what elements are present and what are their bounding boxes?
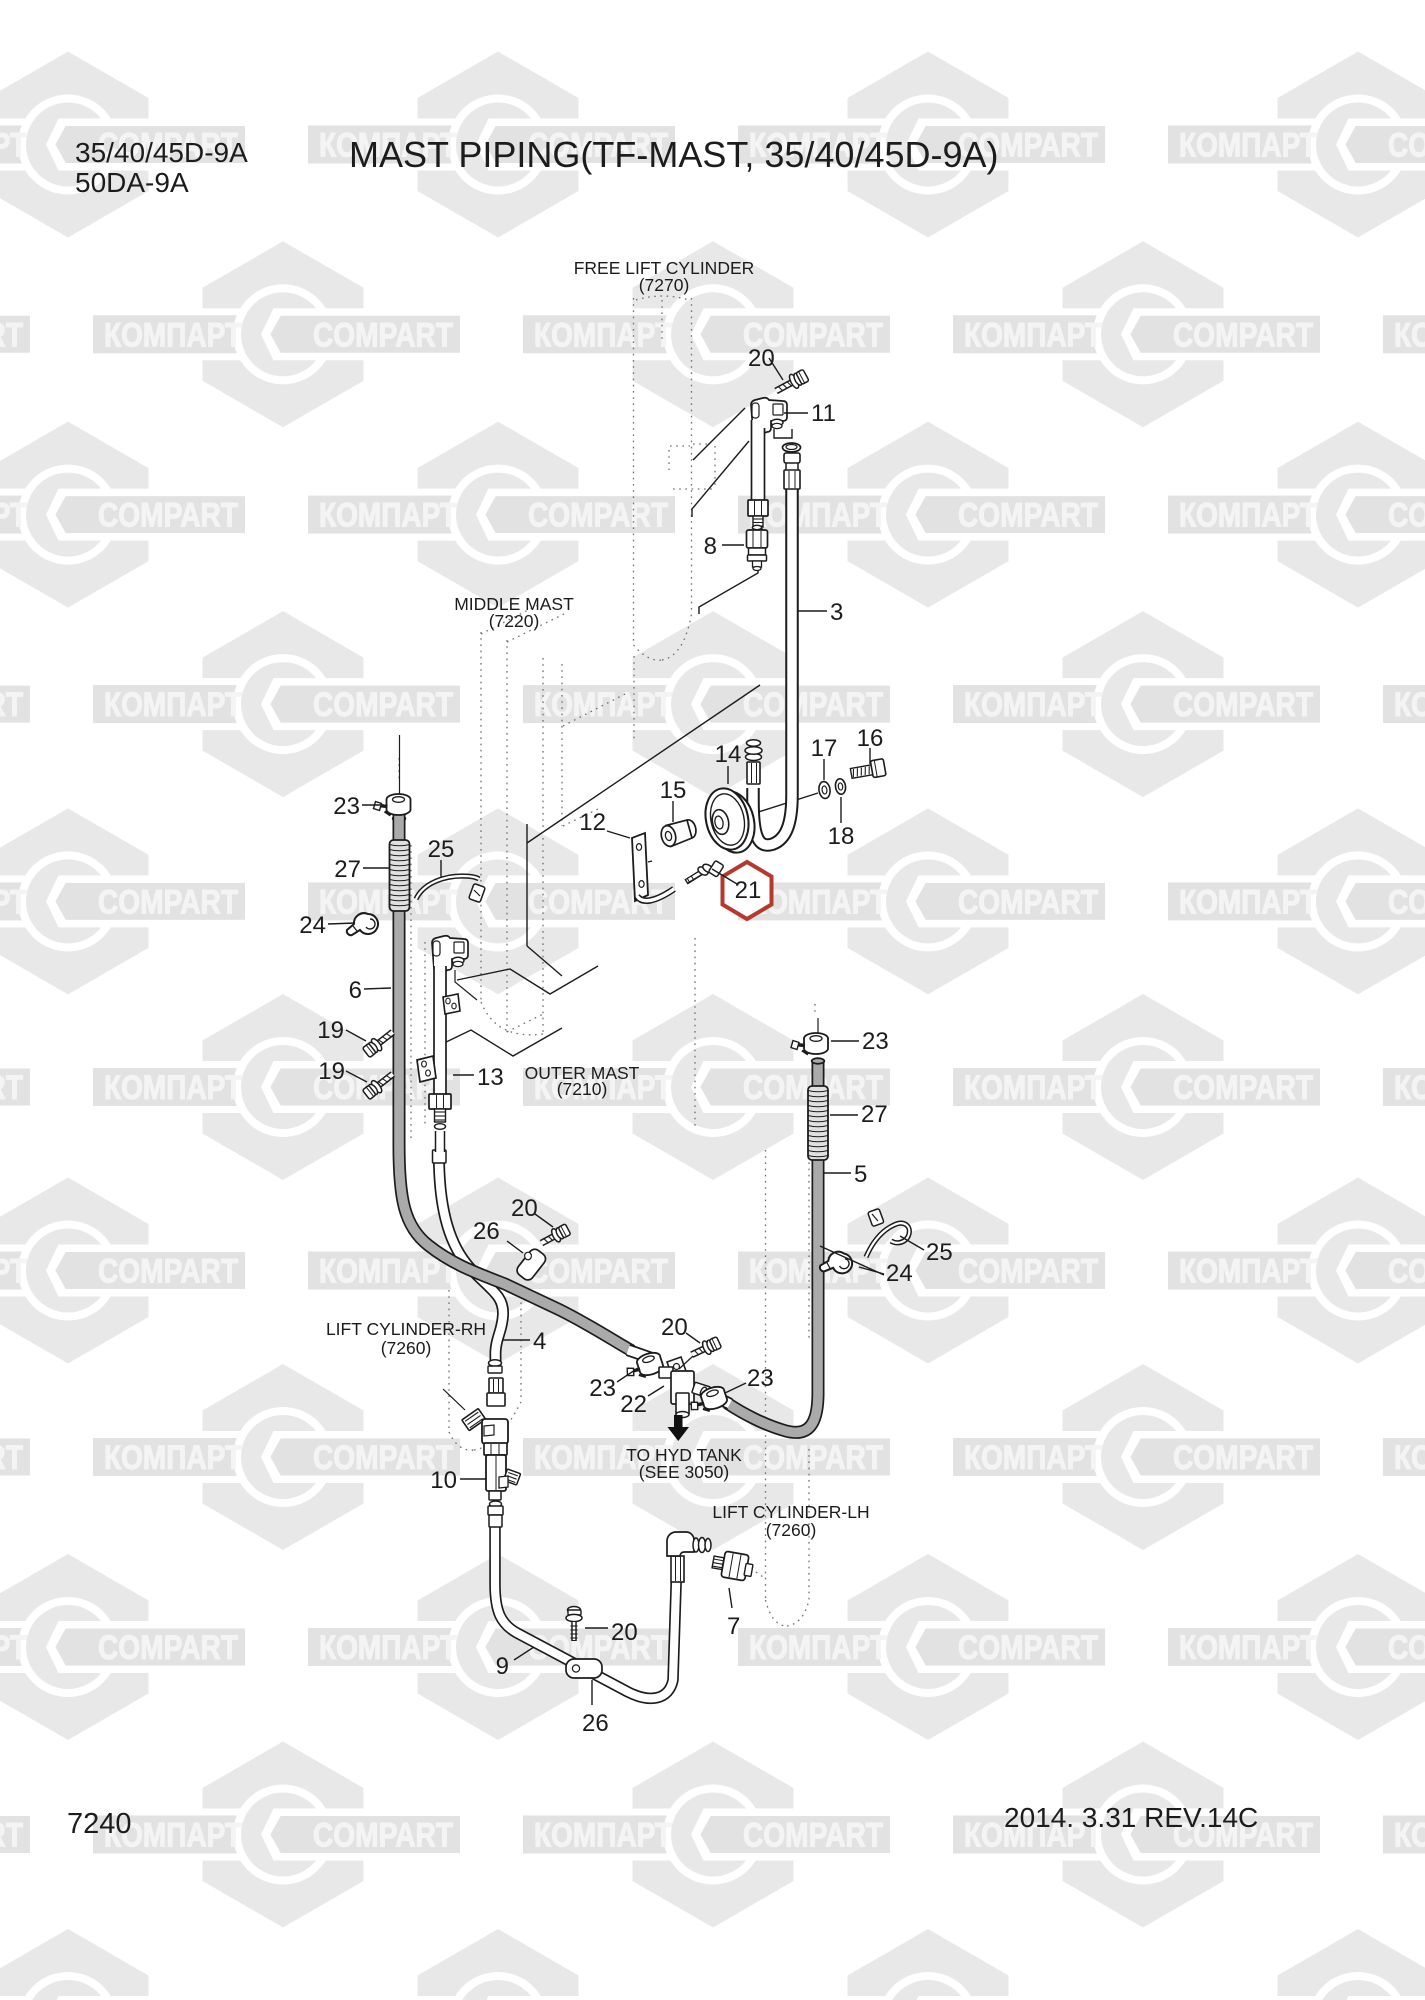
svg-text:15: 15	[660, 777, 687, 804]
svg-text:MAST PIPING(TF-MAST, 35/40/45D: MAST PIPING(TF-MAST, 35/40/45D-9A)	[349, 134, 999, 175]
svg-text:20: 20	[748, 345, 775, 372]
svg-text:19: 19	[317, 1017, 344, 1044]
svg-text:13: 13	[477, 1064, 504, 1091]
svg-text:23: 23	[589, 1375, 616, 1402]
svg-text:(7210): (7210)	[557, 1079, 608, 1099]
svg-text:16: 16	[857, 725, 884, 752]
svg-text:23: 23	[862, 1028, 889, 1055]
svg-text:21: 21	[735, 877, 762, 904]
svg-text:25: 25	[428, 836, 455, 863]
svg-text:24: 24	[299, 912, 326, 939]
svg-text:22: 22	[620, 1391, 647, 1418]
svg-text:23: 23	[333, 793, 360, 820]
svg-text:19: 19	[318, 1058, 345, 1085]
svg-text:23: 23	[747, 1365, 774, 1392]
svg-text:26: 26	[473, 1218, 500, 1245]
svg-text:50DA-9A: 50DA-9A	[75, 167, 189, 198]
svg-text:6: 6	[349, 977, 362, 1004]
svg-text:11: 11	[811, 400, 836, 427]
svg-text:(7260): (7260)	[766, 1520, 817, 1540]
svg-text:(7220): (7220)	[489, 611, 540, 631]
svg-text:20: 20	[511, 1195, 538, 1222]
svg-text:10: 10	[430, 1467, 457, 1494]
svg-text:(7260): (7260)	[381, 1338, 432, 1358]
svg-text:2014. 3.31 REV.14C: 2014. 3.31 REV.14C	[1004, 1802, 1258, 1833]
svg-text:26: 26	[582, 1710, 609, 1737]
svg-text:14: 14	[715, 741, 742, 768]
svg-text:25: 25	[926, 1239, 953, 1266]
svg-text:7: 7	[727, 1613, 740, 1640]
svg-text:27: 27	[861, 1101, 888, 1128]
svg-text:20: 20	[661, 1314, 688, 1341]
svg-text:LIFT CYLINDER-RH: LIFT CYLINDER-RH	[326, 1319, 486, 1339]
svg-text:7240: 7240	[67, 1808, 132, 1840]
svg-text:4: 4	[533, 1328, 546, 1355]
svg-text:9: 9	[496, 1653, 509, 1680]
svg-text:35/40/45D-9A: 35/40/45D-9A	[75, 137, 248, 168]
svg-text:(7270): (7270)	[639, 275, 690, 295]
svg-text:LIFT CYLINDER-LH: LIFT CYLINDER-LH	[712, 1502, 869, 1522]
svg-text:12: 12	[579, 809, 606, 836]
svg-text:20: 20	[611, 1619, 638, 1646]
svg-text:27: 27	[334, 856, 361, 883]
svg-text:18: 18	[828, 823, 855, 850]
svg-text:17: 17	[811, 735, 838, 762]
svg-text:8: 8	[704, 533, 717, 560]
svg-text:(SEE 3050): (SEE 3050)	[639, 1462, 729, 1482]
svg-text:3: 3	[830, 599, 843, 626]
svg-text:24: 24	[886, 1260, 913, 1287]
svg-text:5: 5	[854, 1161, 867, 1188]
